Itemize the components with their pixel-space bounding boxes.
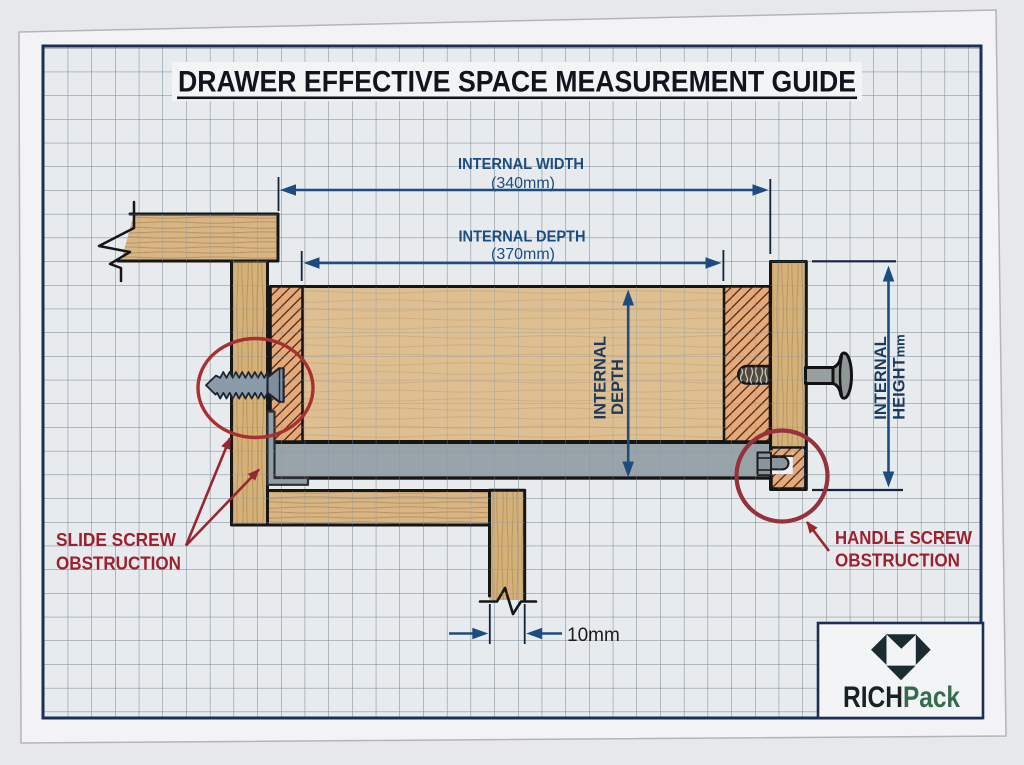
svg-text:INTERNAL: INTERNAL	[592, 336, 610, 419]
svg-text:OBSTRUCTION: OBSTRUCTION	[56, 553, 181, 574]
svg-text:10mm: 10mm	[567, 625, 620, 646]
svg-text:(370mm): (370mm)	[491, 246, 555, 263]
svg-text:HEIGHTmm: HEIGHTmm	[891, 334, 909, 419]
svg-text:DRAWER EFFECTIVE SPACE MEASURE: DRAWER EFFECTIVE SPACE MEASUREMENT GUIDE	[178, 66, 856, 99]
svg-text:(340mm): (340mm)	[491, 175, 555, 192]
svg-text:Pack: Pack	[903, 681, 960, 714]
svg-text:INTERNAL DEPTH: INTERNAL DEPTH	[459, 229, 586, 246]
svg-text:SLIDE SCREW: SLIDE SCREW	[56, 529, 176, 550]
svg-text:INTERNAL: INTERNAL	[872, 336, 890, 419]
svg-text:HANDLE SCREW: HANDLE SCREW	[835, 527, 972, 548]
svg-text:RICH: RICH	[843, 681, 903, 714]
svg-text:DEPTH: DEPTH	[609, 359, 627, 415]
svg-text:INTERNAL WIDTH: INTERNAL WIDTH	[458, 156, 584, 173]
svg-text:OBSTRUCTION: OBSTRUCTION	[835, 550, 960, 571]
